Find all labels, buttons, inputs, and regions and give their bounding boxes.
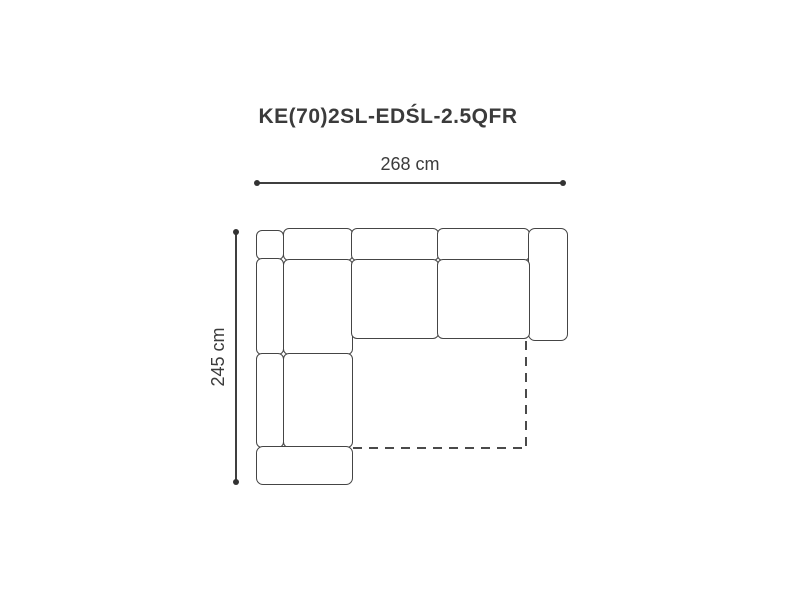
left-backrest-upper bbox=[256, 258, 284, 355]
bed-foldout-dashed-line-vertical bbox=[525, 341, 527, 448]
seat-2 bbox=[437, 259, 530, 339]
bed-foldout-dashed-line-horizontal bbox=[353, 447, 526, 449]
corner-seat-lower bbox=[283, 353, 353, 448]
sofa-dimension-diagram: KE(70)2SL-EDŚL-2.5QFR 268 cm 245 cm bbox=[0, 0, 800, 600]
back-cushion-1 bbox=[351, 228, 439, 261]
width-dimension-line bbox=[257, 182, 563, 184]
product-model-title: KE(70)2SL-EDŚL-2.5QFR bbox=[188, 105, 588, 129]
dim-endpoint-dot bbox=[233, 229, 239, 235]
left-backrest-lower bbox=[256, 353, 284, 448]
right-armrest bbox=[528, 228, 568, 341]
front-armrest bbox=[256, 446, 353, 485]
corner-seat-upper bbox=[283, 259, 353, 355]
corner-back-cushion bbox=[283, 228, 353, 261]
dim-endpoint-dot bbox=[560, 180, 566, 186]
corner-back-block bbox=[256, 230, 284, 260]
width-dimension-label: 268 cm bbox=[310, 154, 510, 175]
depth-dimension-label: 245 cm bbox=[207, 316, 229, 398]
depth-dimension-line bbox=[235, 232, 237, 482]
dim-endpoint-dot bbox=[254, 180, 260, 186]
back-cushion-2 bbox=[437, 228, 530, 261]
seat-1 bbox=[351, 259, 439, 339]
dim-endpoint-dot bbox=[233, 479, 239, 485]
